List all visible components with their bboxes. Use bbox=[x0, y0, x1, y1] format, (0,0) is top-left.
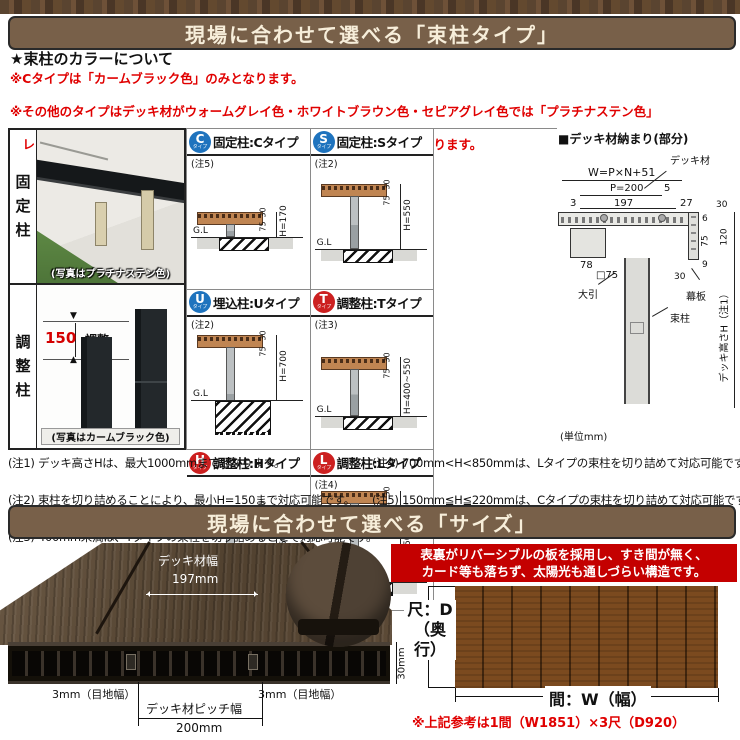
banner-post-type-title: 現場に合わせて選べる「束柱タイプ」 bbox=[185, 19, 559, 48]
note-4: (注4) 700mm<H<850mmは、Lタイプの束柱を切り詰めて対応可能です。 bbox=[372, 456, 740, 470]
fascia-label: 幕板 bbox=[686, 288, 706, 303]
joint-width-label-left: 3mm（目地幅） bbox=[52, 686, 135, 702]
guide-line-top bbox=[43, 321, 129, 322]
post-type-cell-t: Tタイプ 調整柱:Tタイプ (注3) G.L 30 75 H=400~550 bbox=[311, 290, 435, 451]
catalog-page: 現場に合わせて選べる「束柱タイプ」 ★束柱のカラーについて ※Cタイプは「カーム… bbox=[0, 0, 740, 740]
embedded-concrete-hatch bbox=[215, 401, 271, 435]
detail-title: ■デッキ材納まり(部分) bbox=[558, 130, 688, 147]
ground-level-label: G.L bbox=[193, 389, 208, 399]
dim-height: H=550 bbox=[403, 178, 413, 252]
adjustable-post-photo-caption: (写真はカームブラック色) bbox=[41, 428, 180, 445]
cell-header-c: Cタイプ 固定柱:Cタイプ bbox=[187, 129, 310, 156]
adjustable-post-label: 調整柱 bbox=[10, 285, 37, 448]
dim-120: 120 bbox=[720, 228, 730, 245]
joist-label: 大引 bbox=[578, 286, 598, 301]
post-type-cell-s: Sタイプ 固定柱:Sタイプ (注2) G.L 30 75 H=550 bbox=[311, 129, 435, 290]
dim-75: 75 bbox=[382, 191, 391, 211]
post-type-cell-c: Cタイプ 固定柱:Cタイプ (注5) G.L 30 75 H=170 bbox=[187, 129, 311, 290]
pitch-dim: P=200 bbox=[610, 183, 644, 194]
cell-title-s: 固定柱:Sタイプ bbox=[337, 132, 422, 151]
feature-line2: カード等も落ちず、太陽光も通しづらい構造です。 bbox=[391, 563, 737, 580]
joist-graphic bbox=[570, 228, 606, 258]
reference-note: ※上記参考は1間（W1851）×3尺（D920） bbox=[412, 712, 685, 731]
deck-plan-panel bbox=[455, 586, 718, 688]
pitch-label: デッキ材ピッチ幅 bbox=[146, 700, 242, 717]
post-graphic bbox=[350, 196, 359, 249]
height-dim-line bbox=[734, 212, 735, 408]
dim-height: H=700 bbox=[279, 329, 289, 403]
black-post-graphic bbox=[81, 337, 112, 433]
support-post-label: 束柱 bbox=[670, 310, 690, 325]
width-tick-left bbox=[455, 688, 456, 702]
width-tick-right bbox=[718, 688, 719, 702]
pitch-value: 200mm bbox=[176, 721, 222, 735]
color-section-heading: ★束柱のカラーについて bbox=[10, 48, 173, 69]
support-post-graphic bbox=[624, 258, 650, 404]
cell-note-s: (注2) bbox=[315, 156, 338, 170]
deck-material-label: デッキ材 bbox=[670, 152, 710, 167]
deck-width-dim-line bbox=[146, 594, 258, 595]
deck-boards-section bbox=[558, 212, 690, 226]
notes-right-column: (注4) 700mm<H<850mmは、Lタイプの束柱を切り詰めて対応可能です。… bbox=[372, 454, 740, 510]
fixed-post-label: 固定柱 bbox=[10, 130, 37, 283]
dimension-line bbox=[276, 335, 277, 400]
foundation-hatch bbox=[219, 238, 269, 251]
cell-note-t: (注3) bbox=[315, 317, 338, 331]
dim-line-w bbox=[562, 180, 682, 181]
cell-title-c: 固定柱:Cタイプ bbox=[213, 132, 298, 151]
badge-sub: タイプ bbox=[193, 144, 207, 149]
dim-30-top: 30 bbox=[716, 200, 727, 210]
badge-letter: T bbox=[320, 294, 328, 304]
post-photo-box: 固定柱 (写真はプラチナステン色) 調整柱 ▼ ▲ bbox=[8, 128, 186, 450]
dimension-line bbox=[400, 357, 401, 416]
width-formula: W=P×N+51 bbox=[588, 166, 655, 179]
badge-sub: タイプ bbox=[193, 305, 207, 310]
cell-diagram-u: (注2) G.L 30 75 H=700 bbox=[187, 315, 310, 450]
dimension-line bbox=[276, 212, 277, 237]
joint-clip-2 bbox=[248, 654, 258, 670]
deck-beam-graphic bbox=[37, 159, 184, 202]
dim-line-197 bbox=[580, 208, 676, 209]
post-graphic bbox=[350, 369, 359, 416]
black-post-graphic-2 bbox=[135, 309, 167, 435]
fastener-icon bbox=[600, 214, 608, 222]
ground-level-label: G.L bbox=[193, 226, 208, 236]
badge-sub: タイプ bbox=[316, 144, 330, 149]
joint-closeup-photo bbox=[286, 542, 391, 647]
cell-title-t: 調整柱:Tタイプ bbox=[337, 293, 422, 312]
ground-level-label: G.L bbox=[317, 405, 332, 415]
type-u-badge-icon: Uタイプ bbox=[189, 291, 211, 313]
joint-width-label-right: 3mm（目地幅） bbox=[258, 686, 341, 702]
fastener-icon-2 bbox=[658, 214, 666, 222]
foundation-hatch bbox=[343, 250, 393, 263]
banner-size: 現場に合わせて選べる「サイズ」 bbox=[8, 505, 736, 539]
beige-post-graphic-2 bbox=[141, 190, 154, 250]
deck-detail-panel: ■デッキ材納まり(部分) デッキ材 W=P×N+51 P=200 3 197 5… bbox=[558, 128, 740, 452]
dim-5: 5 bbox=[664, 183, 670, 194]
feature-callout-box: 表裏がリバーシブルの板を採用し、すき間が無く、 カード等も落ちず、太陽光も通しづ… bbox=[391, 544, 737, 582]
beige-post-graphic bbox=[95, 202, 107, 246]
dim-3: 3 bbox=[570, 198, 576, 209]
type-t-badge-icon: Tタイプ bbox=[313, 291, 335, 313]
foundation-hatch bbox=[343, 417, 393, 430]
post-type-cell-u: Uタイプ 埋込柱:Uタイプ (注2) G.L 30 75 H=700 bbox=[187, 290, 311, 451]
cell-note-c: (注5) bbox=[191, 156, 214, 170]
pitch-tick-right bbox=[262, 682, 263, 726]
dim-30-bottom: 30 bbox=[674, 272, 685, 282]
wood-texture-strip bbox=[0, 0, 740, 14]
adjust-value: 150 bbox=[45, 329, 76, 347]
fixed-post-photo-caption: (写真はプラチナステン色) bbox=[37, 265, 184, 280]
joint-clip bbox=[126, 654, 136, 670]
post-graphic bbox=[226, 224, 235, 237]
cell-diagram-s: (注2) G.L 30 75 H=550 bbox=[311, 154, 434, 289]
post-type-grid: Cタイプ 固定柱:Cタイプ (注5) G.L 30 75 H=170 bbox=[186, 128, 557, 450]
color-note-line2: ※その他のタイプはデッキ材がウォームグレイ色・ホワイトブラウン色・セピアグレイ色… bbox=[10, 104, 659, 119]
deck-height-label: デッキ高さH（注1） bbox=[715, 289, 730, 383]
dim-6: 6 bbox=[702, 214, 708, 224]
size-section: デッキ材幅 197mm 3mm（目地幅） 3mm（目地幅） デッキ材ピッチ幅 2… bbox=[0, 540, 740, 740]
badge-letter: U bbox=[195, 294, 205, 304]
cell-diagram-t: (注3) G.L 30 75 H=400~550 bbox=[311, 315, 434, 450]
fixed-post-row: 固定柱 (写真はプラチナステン色) bbox=[10, 130, 184, 285]
cell-header-t: Tタイプ 調整柱:Tタイプ bbox=[311, 290, 434, 317]
thickness-dim-line bbox=[396, 642, 397, 684]
fascia-board-graphic bbox=[688, 212, 699, 260]
cell-title-u: 埋込柱:Uタイプ bbox=[213, 293, 299, 312]
pitch-tick-left bbox=[138, 682, 139, 726]
adjustable-post-row: 調整柱 ▼ ▲ 150 調整 (写真はカームブラック色) bbox=[10, 285, 184, 448]
dim-75: 75 bbox=[259, 341, 268, 361]
dimension-line bbox=[400, 184, 401, 249]
type-s-badge-icon: Sタイプ bbox=[313, 131, 335, 153]
leader-line-post bbox=[652, 307, 668, 317]
width-dim-line-left bbox=[455, 696, 543, 697]
badge-letter: S bbox=[319, 134, 328, 144]
handrail-graphic bbox=[40, 142, 108, 161]
leader-line-fascia bbox=[691, 268, 700, 280]
deck-width-label: デッキ材幅 bbox=[158, 552, 218, 569]
dim-sq75: □75 bbox=[596, 270, 618, 281]
badge-letter: C bbox=[196, 134, 205, 144]
width-dim-line-right bbox=[648, 696, 718, 697]
post-seam bbox=[135, 381, 167, 383]
dim-9: 9 bbox=[702, 260, 708, 270]
width-label: 間：W（幅） bbox=[545, 686, 651, 710]
dim-78: 78 bbox=[580, 260, 593, 271]
type-c-badge-icon: Cタイプ bbox=[189, 131, 211, 153]
dim-75: 75 bbox=[701, 235, 711, 246]
down-arrow-icon: ▼ bbox=[70, 311, 77, 321]
cell-note-u: (注2) bbox=[191, 317, 214, 331]
cell-header-u: Uタイプ 埋込柱:Uタイプ bbox=[187, 290, 310, 317]
dim-75: 75 bbox=[382, 363, 391, 383]
cell-header-s: Sタイプ 固定柱:Sタイプ bbox=[311, 129, 434, 156]
ground-level-label: G.L bbox=[317, 238, 332, 248]
deck-width-value: 197mm bbox=[172, 572, 218, 586]
dim-75: 75 bbox=[259, 217, 268, 237]
post-type-diagram-block: 固定柱 (写真はプラチナステン色) 調整柱 ▼ ▲ bbox=[0, 128, 740, 452]
unit-label: (単位mm) bbox=[560, 428, 607, 443]
badge-sub: タイプ bbox=[316, 305, 330, 310]
dim-height: H=170 bbox=[279, 184, 289, 258]
depth-line2: （奥行） bbox=[414, 620, 446, 659]
dim-27: 27 bbox=[680, 198, 693, 209]
color-note-line1: ※Cタイプは「カームブラック色」のみとなります。 bbox=[10, 71, 304, 86]
depth-label: 尺：D （奥行） bbox=[404, 600, 456, 660]
dim-line-p bbox=[580, 195, 662, 196]
banner-post-type: 現場に合わせて選べる「束柱タイプ」 bbox=[8, 16, 736, 50]
fixed-post-photo: (写真はプラチナステン色) bbox=[37, 130, 184, 283]
pitch-dim-line bbox=[138, 718, 262, 719]
feature-line1: 表裏がリバーシブルの板を採用し、すき間が無く、 bbox=[391, 546, 737, 563]
cell-diagram-c: (注5) G.L 30 75 H=170 bbox=[187, 154, 310, 289]
note-1: (注1) デッキ高さHは、最大1000mmまでとなります。 bbox=[8, 456, 285, 470]
banner-size-title: 現場に合わせて選べる「サイズ」 bbox=[207, 508, 536, 537]
dim-height: H=400~550 bbox=[403, 349, 413, 423]
depth-line1: 尺：D bbox=[407, 600, 452, 619]
adjustable-post-photo: ▼ ▲ 150 調整 (写真はカームブラック色) bbox=[37, 285, 184, 448]
deck-cross-section-graphic bbox=[8, 642, 390, 684]
